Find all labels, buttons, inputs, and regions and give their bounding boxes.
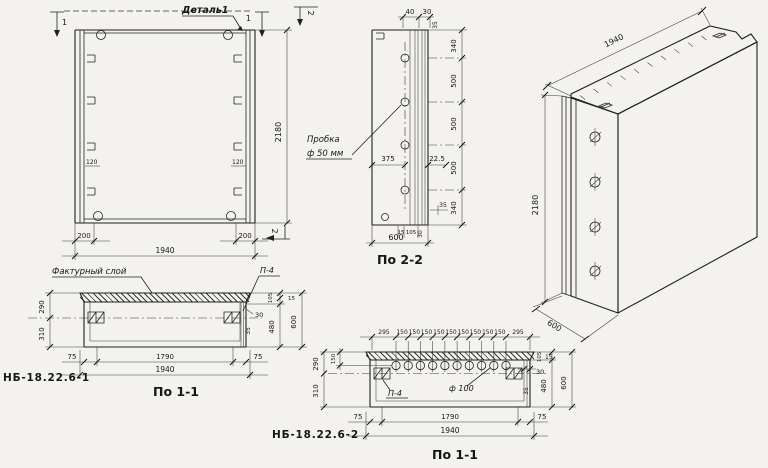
dim-600-a: 600 bbox=[290, 315, 298, 328]
section-mark-2-top: 2 bbox=[306, 10, 315, 15]
dim-200-right: 200 bbox=[238, 232, 251, 240]
dim-15-b: 15 bbox=[545, 354, 553, 361]
label-plug-line2: ф 50 мм bbox=[307, 149, 344, 159]
dim-290-a: 290 bbox=[38, 300, 46, 313]
panel-drawing: 1 1 2 2 120 120 bbox=[0, 0, 768, 468]
dim-480-b: 480 bbox=[540, 379, 548, 392]
section-mark-2-bottom: 2 bbox=[270, 228, 279, 233]
dim-height: 2180 bbox=[274, 122, 283, 142]
hole-row bbox=[392, 341, 510, 372]
dim-75r-a: 75 bbox=[254, 353, 263, 361]
panel-mark-1: НБ-18.22.6-1 bbox=[3, 372, 90, 384]
dim-75l-b: 75 bbox=[354, 413, 363, 421]
dim-35-top: 35 bbox=[432, 21, 439, 29]
dim-375: 375 bbox=[381, 155, 394, 163]
section-mark-1-right: 1 bbox=[246, 14, 251, 23]
dim-top-7: 150 bbox=[470, 329, 482, 336]
dim-600-b: 600 bbox=[560, 376, 568, 389]
dim-480-a: 480 bbox=[268, 320, 276, 333]
isometric-view: 1940 2180 600 bbox=[531, 7, 757, 342]
dim-75l-a: 75 bbox=[68, 353, 77, 361]
dim-30-top: 30 bbox=[423, 8, 432, 16]
loop-in-section bbox=[382, 214, 389, 221]
dim-22-5: 22.5 bbox=[429, 155, 445, 163]
dim-310-a: 310 bbox=[38, 327, 46, 340]
dim-top-5: 150 bbox=[445, 329, 457, 336]
dim-iso-height: 2180 bbox=[531, 195, 540, 215]
embed-brackets-left bbox=[87, 55, 95, 195]
dim-75r-b: 75 bbox=[538, 413, 547, 421]
panel-mark-2: НБ-18.22.6-2 bbox=[272, 429, 359, 441]
dim-rib-right: 120 bbox=[232, 159, 244, 166]
label-p4-b: П-4 bbox=[388, 389, 402, 398]
label-hole-dia: ф 100 bbox=[449, 384, 474, 393]
section-2-2-outline bbox=[372, 30, 428, 225]
dim-340-top: 340 bbox=[450, 39, 458, 52]
dim-iso-depth: 600 bbox=[545, 318, 563, 334]
dim-105-bottom: 105 bbox=[406, 230, 417, 236]
iso-big-face bbox=[618, 42, 757, 313]
dim-35-bottom: 35 bbox=[439, 202, 447, 209]
dim-top-4: 150 bbox=[433, 329, 445, 336]
dim-500-a: 500 bbox=[450, 74, 458, 87]
dim-top-2: 150 bbox=[409, 329, 421, 336]
dim-200-left: 200 bbox=[77, 232, 90, 240]
dim-40: 40 bbox=[406, 8, 415, 16]
dim-310-b: 310 bbox=[312, 384, 320, 397]
iso-plug-holes bbox=[590, 128, 601, 280]
body-a bbox=[84, 302, 246, 347]
dim-top-10: 295 bbox=[512, 329, 524, 336]
iso-top-hatch bbox=[580, 36, 707, 99]
dim-rib35-b: 35 bbox=[523, 387, 530, 395]
section-1-1-a: П-4 Фактурный слой 290 310 15 105 480 60… bbox=[3, 266, 307, 399]
facing-strip-b bbox=[366, 352, 534, 360]
dim-290-b: 290 bbox=[312, 357, 320, 370]
label-p4-a: П-4 bbox=[260, 266, 274, 275]
embed-plate bbox=[88, 312, 240, 323]
dim-500-c: 500 bbox=[450, 161, 458, 174]
front-view: 1 1 2 2 120 120 bbox=[50, 5, 318, 260]
dim-rib30-b: 30 bbox=[536, 368, 544, 376]
section-1-1-b: 295 150 150 150 150 150 150 150 150 150 … bbox=[272, 329, 576, 462]
dim-top-6: 150 bbox=[457, 329, 469, 336]
iso-top-face bbox=[571, 26, 757, 114]
dim-600-s22: 600 bbox=[388, 233, 403, 242]
section-2-2-title: По 2-2 bbox=[377, 252, 423, 267]
dim-340-bottom: 340 bbox=[450, 201, 458, 214]
dim-1940-a: 1940 bbox=[155, 365, 174, 374]
dim-500-b: 500 bbox=[450, 117, 458, 130]
dim-top-8: 150 bbox=[482, 329, 494, 336]
label-plug-line1: Пробка bbox=[307, 135, 340, 145]
iso-lifting-loop bbox=[713, 33, 726, 38]
section-1-1-a-title: По 1-1 bbox=[153, 384, 199, 399]
dim-1790-b: 1790 bbox=[441, 413, 459, 421]
dim-rib35-a: 35 bbox=[245, 327, 252, 335]
dim-30-bottom: 30 bbox=[417, 230, 424, 238]
dim-top-1: 150 bbox=[396, 329, 408, 336]
facing-strip-a bbox=[80, 293, 250, 302]
dim-rib-left: 120 bbox=[86, 159, 98, 166]
label-facing-layer: Фактурный слой bbox=[52, 267, 127, 277]
label-detail-1: Деталь1 bbox=[181, 5, 228, 16]
section-1-1-b-title: По 1-1 bbox=[432, 447, 478, 462]
lifting-loop bbox=[97, 31, 106, 40]
iso-end-face bbox=[571, 98, 618, 313]
dim-1790-a: 1790 bbox=[156, 353, 174, 361]
embed-brackets-right bbox=[234, 55, 242, 195]
dim-105-b: 105 bbox=[537, 351, 543, 362]
iso-facing-rib bbox=[562, 96, 576, 297]
front-outline bbox=[75, 30, 255, 223]
dim-iso-length: 1940 bbox=[603, 32, 625, 49]
dim-1940-b: 1940 bbox=[440, 426, 459, 435]
dim-top-0: 295 bbox=[378, 329, 390, 336]
dim-105-a: 105 bbox=[268, 292, 274, 303]
section-mark-1-left: 1 bbox=[62, 18, 67, 27]
lifting-loop bbox=[224, 31, 233, 40]
dim-1940-front: 1940 bbox=[155, 246, 174, 255]
dim-15-a: 15 bbox=[288, 296, 295, 302]
dim-150-b: 150 bbox=[331, 353, 337, 364]
dim-top-3: 150 bbox=[421, 329, 433, 336]
dim-top-9: 150 bbox=[494, 329, 506, 336]
dim-rib30-a: 30 bbox=[255, 311, 263, 319]
section-2-2: 40 30 35 340 500 500 500 340 Пробка ф 50… bbox=[306, 8, 467, 267]
drawing-sheet: 1 1 2 2 120 120 bbox=[0, 0, 768, 468]
